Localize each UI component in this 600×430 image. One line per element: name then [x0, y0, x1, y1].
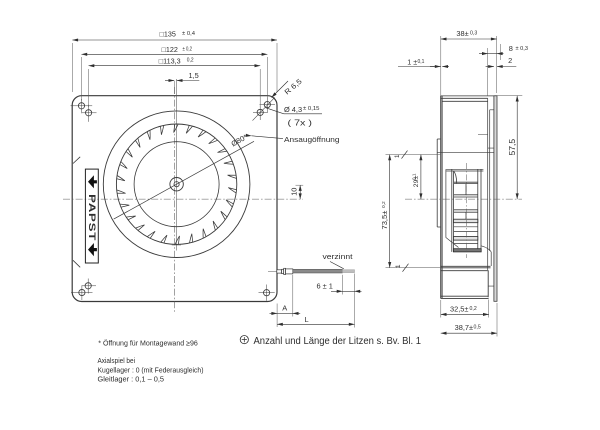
svg-text:± 0,15: ± 0,15: [303, 106, 320, 112]
svg-text:1: 1: [395, 264, 402, 268]
svg-text:0,1: 0,1: [418, 59, 425, 65]
svg-text:0,3: 0,3: [470, 31, 477, 37]
svg-text:32,5±: 32,5±: [450, 305, 468, 314]
svg-text:1: 1: [394, 154, 401, 158]
svg-text:10: 10: [289, 188, 298, 196]
svg-text:□122: □122: [162, 45, 178, 54]
svg-text:1,5: 1,5: [189, 71, 199, 80]
svg-text:( 7x ): ( 7x ): [288, 118, 313, 127]
svg-text:Ø 4,3: Ø 4,3: [284, 105, 302, 114]
svg-text:0,2: 0,2: [381, 201, 387, 208]
svg-text:8: 8: [509, 44, 513, 53]
svg-text:verzinnt: verzinnt: [323, 252, 353, 261]
svg-text:± 0,3: ± 0,3: [516, 46, 529, 52]
svg-text:Anzahl und Länge der Litzen s.: Anzahl und Länge der Litzen s. Bv. Bl. 1: [254, 336, 422, 347]
svg-text:Axialspiel bei: Axialspiel bei: [98, 358, 136, 365]
svg-text:38±: 38±: [456, 29, 468, 38]
svg-text:2: 2: [508, 56, 512, 65]
svg-text:73,5±: 73,5±: [380, 211, 389, 230]
svg-text:0,2: 0,2: [187, 57, 194, 63]
svg-text:± 0,4: ± 0,4: [182, 31, 195, 37]
svg-text:0,2: 0,2: [470, 306, 477, 312]
svg-text:* Öffnung für Montagewand ≥96: * Öffnung für Montagewand ≥96: [98, 339, 198, 347]
svg-text:Ansaugöffnung: Ansaugöffnung: [284, 135, 340, 144]
svg-text:Kugellager : 0 (mit Federausgl: Kugellager : 0 (mit Federausgleich): [98, 368, 204, 375]
svg-text:57,5: 57,5: [507, 139, 517, 156]
svg-text:A: A: [282, 304, 287, 313]
svg-text:PAPST: PAPST: [87, 194, 97, 241]
svg-text:38,7±: 38,7±: [455, 323, 473, 332]
svg-text:□135: □135: [160, 30, 176, 39]
svg-text:Gleitlager : 0,1 – 0,5: Gleitlager : 0,1 – 0,5: [98, 377, 165, 384]
svg-text:0,1: 0,1: [412, 173, 417, 180]
svg-text:6 ± 1: 6 ± 1: [317, 282, 333, 291]
svg-text:± 0,2: ± 0,2: [183, 46, 193, 52]
svg-text:0,5: 0,5: [474, 325, 481, 331]
svg-text:□113,3: □113,3: [159, 56, 181, 65]
svg-text:1 ±: 1 ±: [407, 57, 417, 66]
svg-text:L: L: [305, 315, 309, 324]
